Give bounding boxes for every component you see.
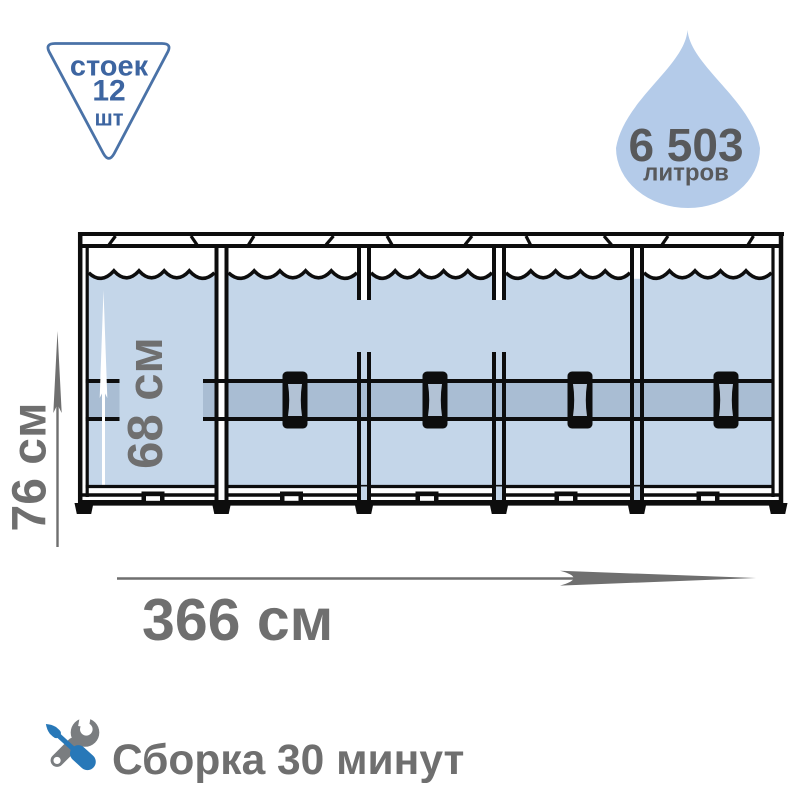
svg-text:68 см: 68 см <box>119 337 173 469</box>
svg-text:литров: литров <box>643 160 729 187</box>
svg-text:12: 12 <box>92 75 125 108</box>
svg-text:Сборка 30 минут: Сборка 30 минут <box>112 737 464 784</box>
svg-text:366 см: 366 см <box>142 587 333 653</box>
svg-text:шт: шт <box>94 106 123 131</box>
svg-text:76 см: 76 см <box>4 403 57 532</box>
